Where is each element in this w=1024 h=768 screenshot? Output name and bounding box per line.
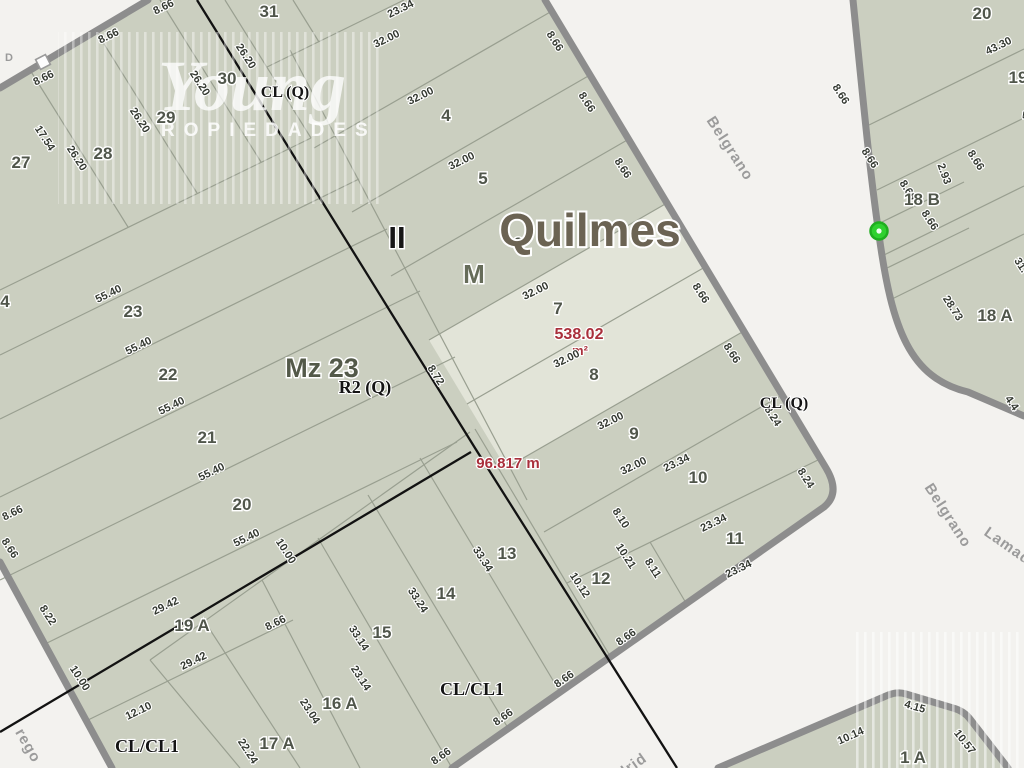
lot-label-15: 15	[373, 623, 392, 642]
zoning-label-clq: CL (Q)	[760, 395, 808, 412]
lot-label-1a: 1 A	[900, 748, 926, 767]
lot-label-19a: 19 A	[174, 616, 209, 635]
lot-label-16a: 16 A	[322, 694, 357, 713]
lot-label-13: 13	[498, 544, 517, 563]
area-label-sqm: 538.02	[555, 326, 604, 343]
lot-label-29: 29	[157, 108, 176, 127]
section-label-ii: II	[388, 220, 405, 255]
zoning-label-clcl1: CL/CL1	[440, 679, 504, 699]
lot-label-11: 11	[726, 529, 744, 548]
lot-label-21: 21	[198, 428, 217, 447]
lot-label-22: 22	[159, 365, 178, 384]
lot-label-27: 27	[12, 153, 31, 172]
lot-label-18a: 18 A	[977, 306, 1012, 325]
zoning-label-clq: CL (Q)	[261, 84, 309, 101]
zoning-label-clcl1: CL/CL1	[115, 736, 179, 756]
lot-label-24-partial: 4	[0, 292, 10, 311]
lot-label-5: 5	[478, 169, 487, 188]
watermark-stripes	[852, 632, 1024, 768]
lot-label-23: 23	[124, 302, 143, 321]
lot-label-7: 7	[553, 299, 562, 318]
lot-label-9: 9	[629, 424, 638, 443]
lot-label-28: 28	[94, 144, 113, 163]
lot-label-20-right: 20	[973, 4, 992, 23]
section-label-m: M	[463, 259, 485, 289]
marker-green-dot[interactable]	[871, 223, 888, 240]
lot-label-12: 12	[592, 569, 611, 588]
lot-label-19-right: 19	[1009, 68, 1024, 87]
lot-label-20: 20	[233, 495, 252, 514]
lot-label-31: 31	[260, 2, 279, 21]
cadastral-map-viewport[interactable]: YoungPROPIEDADES8.6623.348.668.6626.2026…	[0, 0, 1024, 768]
lot-label-30: 30	[218, 69, 237, 88]
cadastral-map[interactable]: YoungPROPIEDADES8.6623.348.668.6626.2026…	[0, 0, 1024, 768]
lot-label-4: 4	[441, 106, 451, 125]
length-label-96817: 96.817 m	[476, 455, 539, 472]
lot-label-14: 14	[437, 584, 456, 603]
lot-label-18b: 18 B	[904, 190, 940, 209]
lot-label-10: 10	[689, 468, 708, 487]
zoning-label-r2q: R2 (Q)	[339, 377, 392, 398]
lot-label-8: 8	[589, 365, 598, 384]
lot-label-17a: 17 A	[259, 734, 294, 753]
letter-d-artifact: D	[5, 52, 13, 64]
city-label-quilmes: Quilmes	[499, 204, 681, 256]
